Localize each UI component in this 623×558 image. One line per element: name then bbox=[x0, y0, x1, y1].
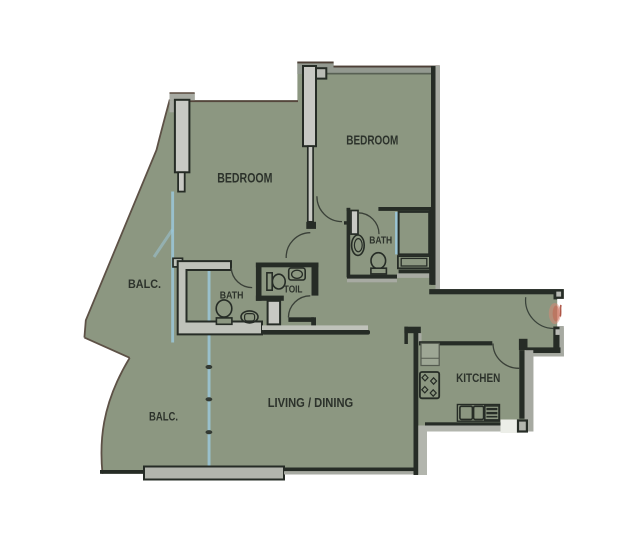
svg-text:BEDROOM: BEDROOM bbox=[346, 133, 398, 147]
svg-text:BEDROOM: BEDROOM bbox=[217, 171, 272, 186]
svg-text:BALC.: BALC. bbox=[149, 412, 178, 424]
svg-text:BATH: BATH bbox=[369, 235, 392, 247]
svg-text:BATH: BATH bbox=[220, 290, 244, 302]
svg-text:BALC.: BALC. bbox=[128, 277, 161, 291]
svg-text:KITCHEN: KITCHEN bbox=[456, 373, 500, 385]
svg-text:LIVING / DINING: LIVING / DINING bbox=[268, 396, 354, 410]
svg-text:TOIL: TOIL bbox=[284, 283, 303, 295]
